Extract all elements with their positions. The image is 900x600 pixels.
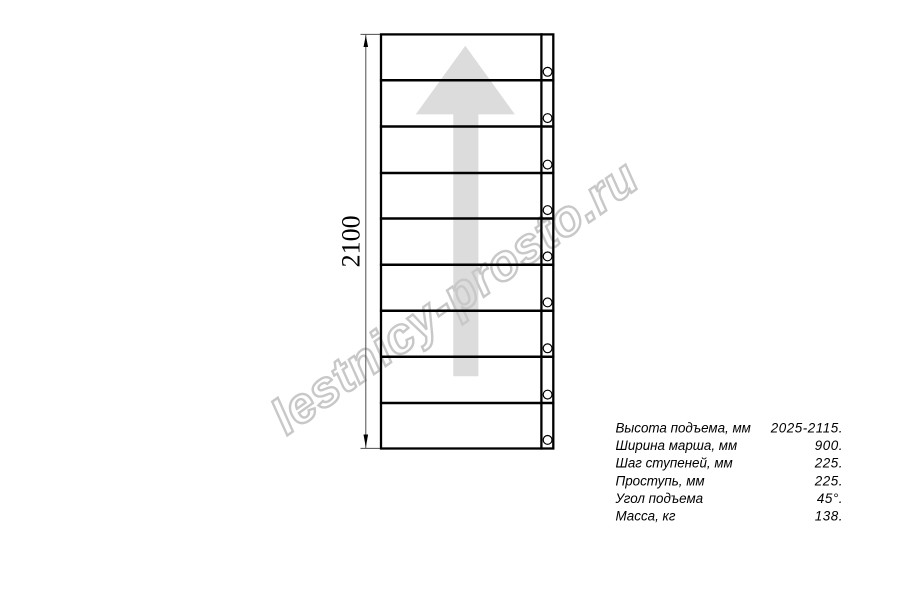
- svg-text:225.: 225.: [814, 456, 843, 471]
- svg-text:45°.: 45°.: [817, 491, 843, 506]
- svg-text:Проступь, мм: Проступь, мм: [616, 473, 705, 488]
- svg-text:2100: 2100: [337, 215, 366, 267]
- svg-text:900.: 900.: [815, 438, 843, 453]
- svg-text:Масса, кг: Масса, кг: [616, 509, 676, 524]
- svg-text:Ширина марша, мм: Ширина марша, мм: [616, 438, 738, 453]
- svg-text:Высота подъема, мм: Высота подъема, мм: [616, 420, 751, 435]
- svg-text:Угол подъема: Угол подъема: [615, 491, 704, 506]
- svg-text:Шаг ступеней, мм: Шаг ступеней, мм: [616, 456, 733, 471]
- svg-text:138.: 138.: [815, 509, 843, 524]
- svg-text:2025-2115.: 2025-2115.: [770, 420, 843, 435]
- svg-text:225.: 225.: [814, 473, 843, 488]
